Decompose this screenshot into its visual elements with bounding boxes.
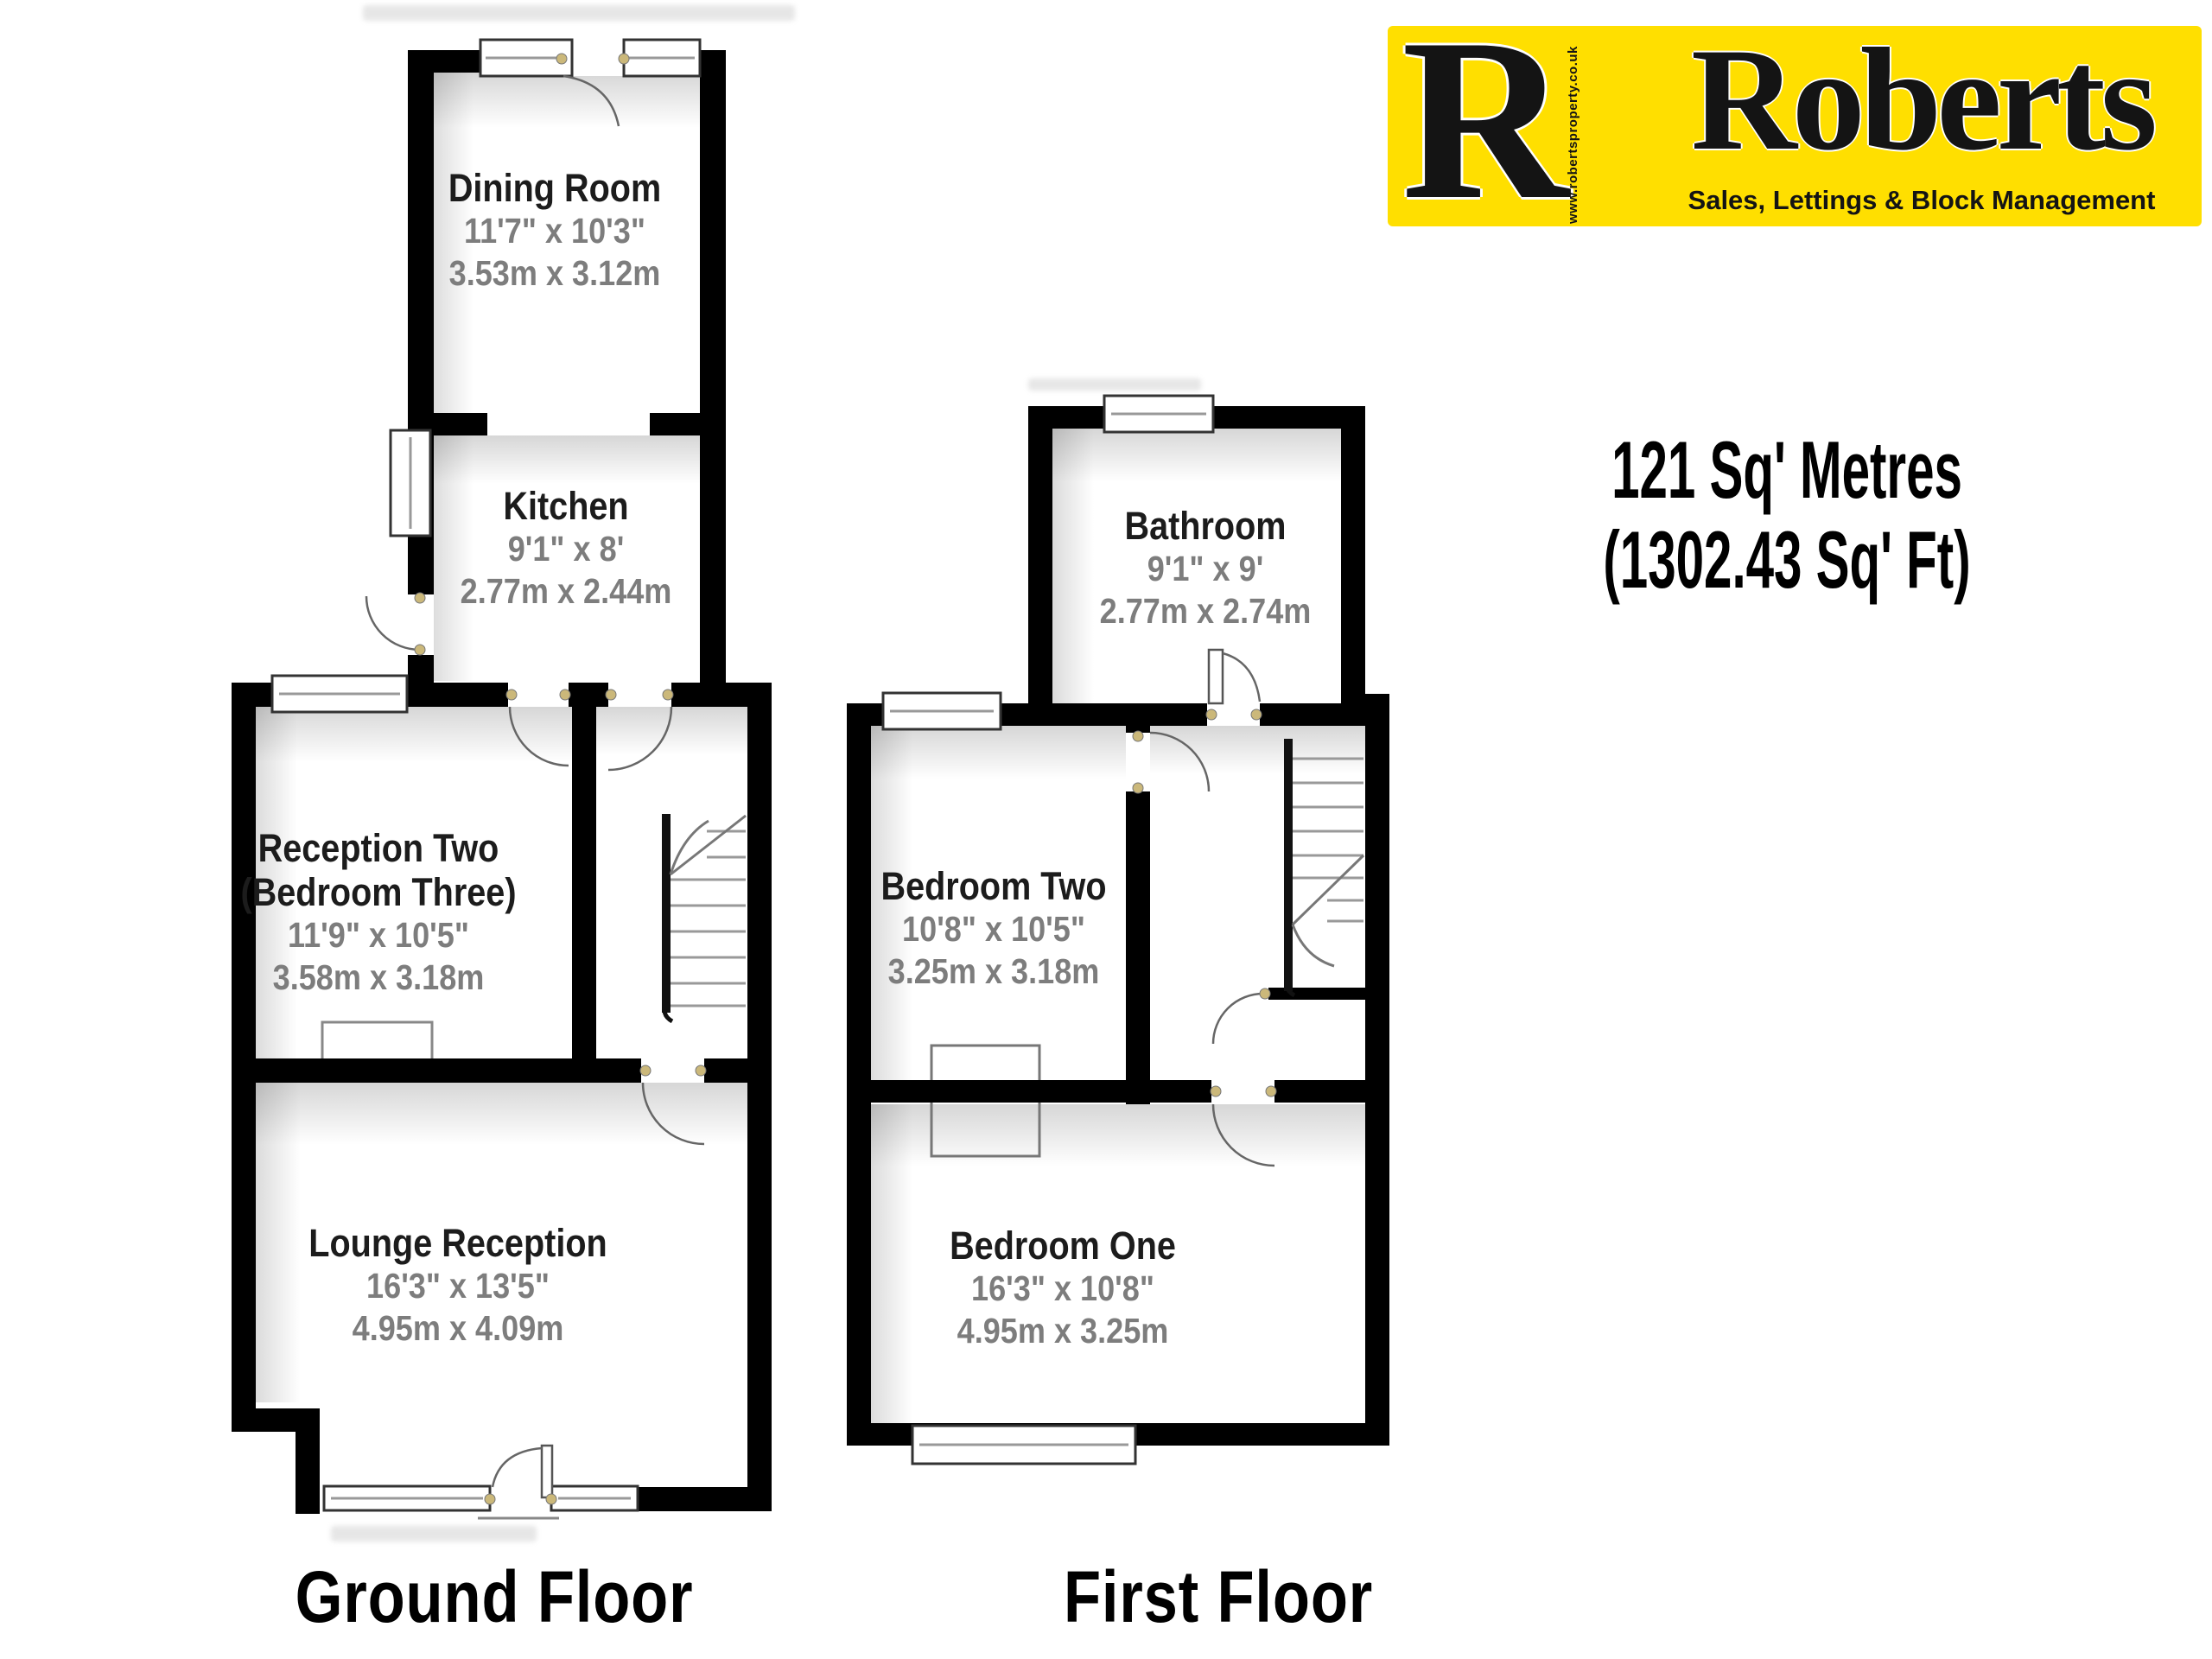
- room-name: Dining Room: [448, 166, 661, 210]
- door-arc-cupboard: [1213, 994, 1263, 1044]
- logo-website-vertical: www.robertsproperty.co.uk: [1566, 55, 1580, 224]
- room-dims-imperial: 9'1" x 9': [1100, 548, 1312, 590]
- room-label-lounge-reception: Lounge Reception 16'3" x 13'5" 4.95m x 4…: [308, 1221, 607, 1350]
- door-arc-bathroom: [1223, 653, 1260, 702]
- room-dims-imperial: 16'3" x 13'5": [308, 1265, 607, 1307]
- roberts-logo: R www.robertsproperty.co.uk Roberts Sale…: [1388, 26, 2202, 226]
- room-name-alt: (Bedroom Three): [240, 870, 516, 914]
- window-dining-top-2: [624, 40, 700, 76]
- room-name: Bedroom Two: [880, 864, 1106, 908]
- room-dims-imperial: 9'1" x 8': [461, 528, 672, 570]
- window-bathroom-top: [1104, 396, 1213, 432]
- window-lounge-bottom-right: [551, 1486, 638, 1510]
- door-leaf-bathroom: [1209, 650, 1223, 703]
- stairs-first-floor: [1284, 739, 1363, 995]
- logo-brand-name: Roberts: [1647, 12, 2196, 187]
- room-dims-metric: 3.58m x 3.18m: [240, 957, 516, 999]
- room-dims-imperial: 10'8" x 10'5": [880, 908, 1106, 950]
- window-kitchen-left: [391, 430, 430, 536]
- room-dims-metric: 3.25m x 3.18m: [880, 950, 1106, 993]
- watermark-ground-floor: [331, 1526, 537, 1541]
- floor-title-first: First Floor: [1064, 1555, 1373, 1639]
- total-area-text: 121 Sq' Metres (1302.43 Sq' Ft): [1603, 425, 1970, 605]
- watermark-top: [363, 5, 795, 21]
- total-area-metres: 121 Sq' Metres: [1603, 425, 1970, 515]
- room-label-reception-two: Reception Two (Bedroom Three) 11'9" x 10…: [240, 826, 516, 999]
- room-name: Reception Two: [240, 826, 516, 870]
- room-name: Kitchen: [461, 484, 672, 528]
- room-dims-imperial: 11'7" x 10'3": [448, 210, 661, 252]
- room-name: Bedroom One: [950, 1224, 1176, 1268]
- floorplan-page: Dining Room 11'7" x 10'3" 3.53m x 3.12m …: [0, 0, 2212, 1659]
- door-leaf-front: [542, 1446, 552, 1497]
- logo-r-monogram: R: [1402, 3, 1569, 235]
- watermark-first-floor: [1028, 378, 1201, 391]
- room-label-bathroom: Bathroom 9'1" x 9' 2.77m x 2.74m: [1100, 504, 1312, 632]
- logo-tagline: Sales, Lettings & Block Management: [1647, 185, 2196, 216]
- room-label-kitchen: Kitchen 9'1" x 8' 2.77m x 2.44m: [461, 484, 672, 613]
- room-dims-metric: 2.77m x 2.74m: [1100, 590, 1312, 632]
- room-dims-metric: 2.77m x 2.44m: [461, 570, 672, 613]
- room-dims-metric: 3.53m x 3.12m: [448, 252, 661, 295]
- window-bedroom-one-bottom: [912, 1426, 1135, 1464]
- room-label-bedroom-two: Bedroom Two 10'8" x 10'5" 3.25m x 3.18m: [880, 864, 1106, 993]
- window-lounge-bottom-left: [324, 1486, 490, 1510]
- total-area-feet: (1302.43 Sq' Ft): [1603, 515, 1970, 605]
- room-dims-metric: 4.95m x 4.09m: [308, 1307, 607, 1350]
- room-dims-imperial: 11'9" x 10'5": [240, 914, 516, 957]
- room-label-bedroom-one: Bedroom One 16'3" x 10'8" 4.95m x 3.25m: [950, 1224, 1176, 1352]
- floor-title-ground: Ground Floor: [296, 1555, 694, 1639]
- room-name: Lounge Reception: [308, 1221, 607, 1265]
- stairs-ground-floor: [662, 814, 746, 1021]
- room-dims-imperial: 16'3" x 10'8": [950, 1268, 1176, 1310]
- door-arc-front: [493, 1448, 542, 1487]
- window-reception-top: [272, 676, 407, 712]
- room-dims-metric: 4.95m x 3.25m: [950, 1310, 1176, 1352]
- room-label-dining-room: Dining Room 11'7" x 10'3" 3.53m x 3.12m: [448, 166, 661, 295]
- room-name: Bathroom: [1100, 504, 1312, 548]
- window-bedroom-two-top: [883, 693, 1001, 729]
